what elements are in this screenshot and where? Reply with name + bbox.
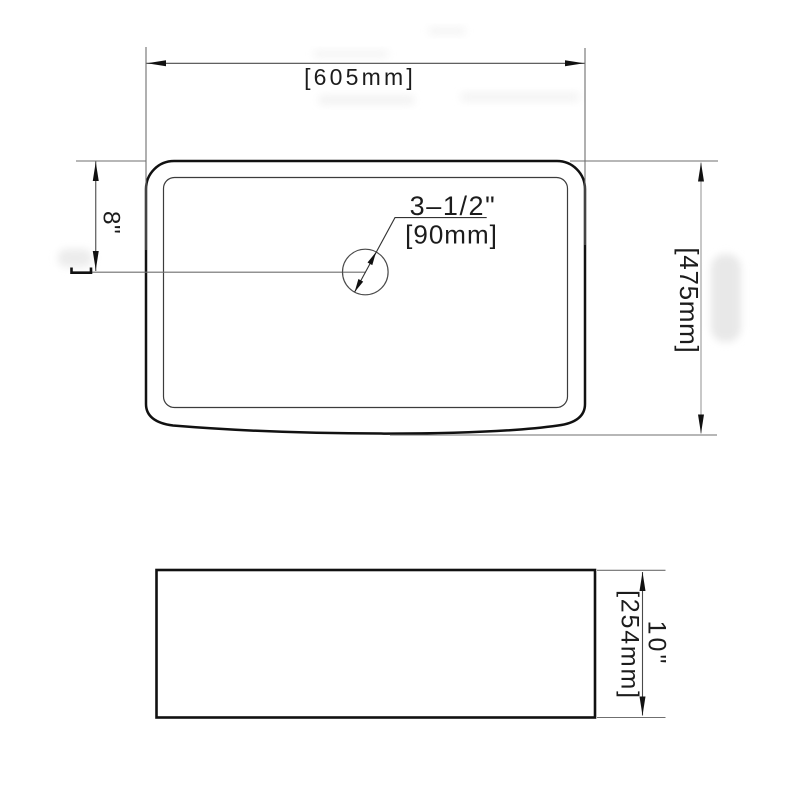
svg-text:[90mm]: [90mm] xyxy=(405,220,498,250)
svg-text:[605mm]: [605mm] xyxy=(304,64,416,90)
svg-text:[475mm]: [475mm] xyxy=(674,247,704,353)
svg-text:[254mm]: [254mm] xyxy=(616,590,644,700)
svg-text:8": 8" xyxy=(97,211,124,234)
svg-text:3–1/2": 3–1/2" xyxy=(410,191,497,221)
svg-text:10": 10" xyxy=(643,621,671,667)
